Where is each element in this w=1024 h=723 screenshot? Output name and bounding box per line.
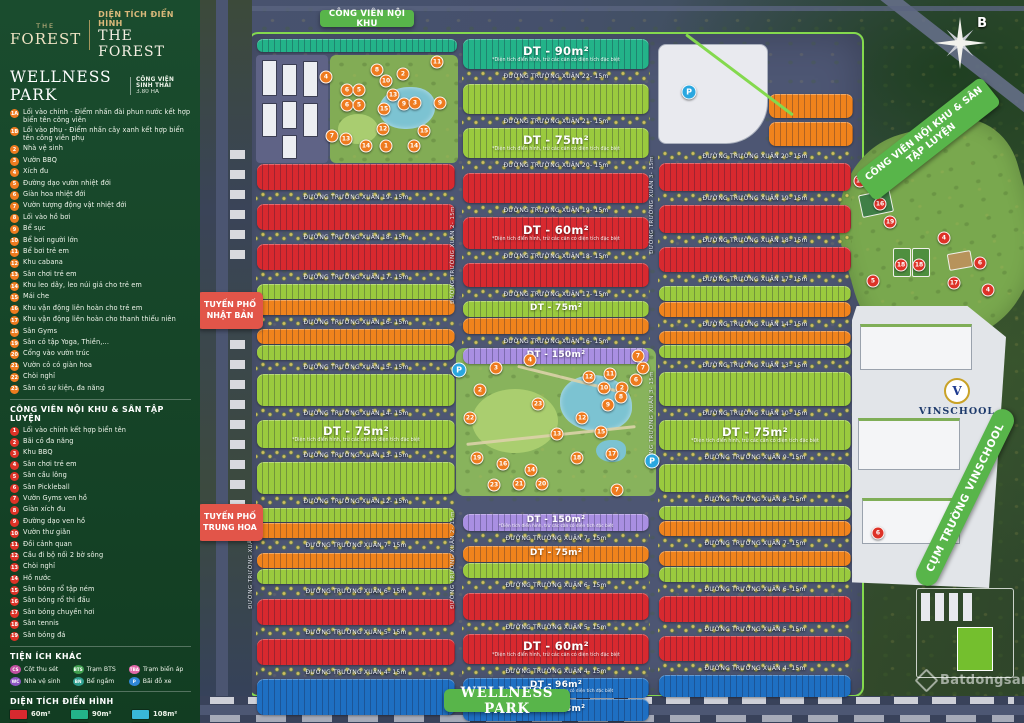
legend-item: 8Giàn xích đu [10, 506, 191, 515]
legend-item: 6Sân Pickleball [10, 484, 191, 493]
lot-row: DT - 75m²*Diện tích điển hình, trừ các c… [257, 420, 455, 448]
legend-item: 10Vườn thư giãn [10, 529, 191, 538]
area-label: DT - 75m² [463, 301, 649, 317]
street: ĐƯỜNG TRƯỜNG XUÂN 5- 15m [462, 621, 650, 633]
legend-badge: 8 [10, 506, 19, 515]
amenity-badge: 14 [360, 140, 373, 153]
lot-row [463, 563, 649, 578]
legend-badge: 12 [10, 259, 19, 268]
legend-label: Bể bơi người lớn [23, 237, 78, 245]
street: ĐƯỜNG TRƯỜNG XUÂN 4- 15m [462, 665, 650, 677]
legend-label: Sân tennis [23, 620, 59, 628]
amenity-badge: 9 [602, 399, 615, 412]
legend-label: Đường dạo ven hồ [23, 518, 85, 526]
legend-item: 21Vườn cỏ có giàn hoa [10, 362, 191, 371]
school-building [860, 324, 972, 370]
amenity-badge: 12 [377, 123, 390, 136]
legend-badge: 4 [10, 461, 19, 470]
legend-item: 14Khu leo dây, leo núi giả cho trẻ em [10, 282, 191, 291]
watermark: Batdongsan [918, 672, 1024, 689]
legend-badge: 22 [10, 373, 19, 382]
lawn [957, 627, 993, 671]
utility-badge-icon: BN [73, 677, 84, 686]
lot-row [257, 345, 455, 360]
street: ĐƯỜNG TRƯỜNG XUÂN 18- 15m [658, 234, 852, 246]
amenity-badge: 19 [471, 452, 484, 465]
legend-item: 12Cầu đi bộ nối 2 bờ sông [10, 552, 191, 561]
legend-badge: 15 [10, 586, 19, 595]
legend-badge: 14 [10, 282, 19, 291]
amenity-badge: 10 [380, 75, 393, 88]
legend-badge: 1 [10, 427, 19, 436]
legend-badge: 5 [10, 472, 19, 481]
lot-row [463, 263, 649, 287]
legend-badge: 1A [10, 109, 19, 118]
lot-row: DT - 150m² [463, 348, 649, 364]
legend-badge: 18 [10, 328, 19, 337]
amenity-badge: 11 [431, 56, 444, 69]
wellness-park-heading: WELLNESS PARK CÔNG VIÊN SINH THÁI 3.80 H… [10, 68, 191, 104]
legend-badge: 20 [10, 350, 19, 359]
street-vertical: ĐƯỜNG TRƯỜNG XUÂN 2- 15m [450, 206, 456, 304]
banner-japanese-street: TUYẾN PHỐ NHẬT BẢN [197, 292, 263, 329]
legend-label: Đồi cảnh quan [23, 541, 72, 549]
street: ĐƯỜNG TRƯỜNG XUÂN 19- 15m [462, 204, 650, 216]
vinschool-logo: V VINSCHOOL [914, 378, 1000, 417]
lot-column-right: ĐƯỜNG TRƯỜNG XUÂN 20- 15mĐƯỜNG TRƯỜNG XU… [658, 150, 852, 698]
utility-label: Trạm biến áp [143, 666, 183, 673]
amenity-badge: 15 [595, 426, 608, 439]
utilities-legend-grid: CSCột thu sétBTSTrạm BTSTBATrạm biến ápW… [10, 665, 191, 686]
legend-badge: 16 [10, 305, 19, 314]
utility-label: Cột thu sét [24, 666, 58, 673]
legend-label: Hồ nước [23, 575, 51, 583]
legend-item: 9Bể sục [10, 225, 191, 234]
street: ĐƯỜNG TRƯỜNG XUÂN 7- 15m [256, 539, 456, 552]
legend-badge: 5 [10, 180, 19, 189]
area-size-label: 60m² [31, 710, 51, 718]
section-title: CÔNG VIÊN NỘI KHU & SÂN TẬP LUYỆN [10, 405, 191, 423]
street: ĐƯỜNG TRƯỜNG XUÂN 17- 15m [462, 288, 650, 300]
utility-label: Bể ngầm [87, 678, 115, 685]
utility-label: Bãi đỗ xe [143, 678, 172, 685]
banner-wellness-park: WELLNESS PARK [444, 689, 570, 712]
watermark-diamond-icon [914, 668, 938, 692]
legend-item: 11Bể bơi trẻ em [10, 248, 191, 257]
street: ĐƯỜNG TRƯỜNG XUÂN 10- 15m [658, 407, 852, 419]
legend-label: Giàn hoa nhiệt đới [23, 191, 85, 199]
banner-chinese-street: TUYẾN PHỐ TRUNG HOA [197, 504, 263, 541]
amenity-badge: 5 [353, 99, 366, 112]
amenity-badge: 13 [340, 133, 353, 146]
amenity-badge: 5 [867, 275, 880, 288]
legend-item: 19Sân bóng đá [10, 632, 191, 641]
legend-item: 16Sân bóng rổ thi đấu [10, 597, 191, 606]
legend-badge: 1B [10, 127, 19, 136]
amenity-badge: 18 [913, 259, 926, 272]
lot-row [659, 675, 851, 697]
area-label: DT - 75m² [463, 546, 649, 562]
amenity-badge: 17 [948, 277, 961, 290]
amenity-badge: 23 [488, 479, 501, 492]
lot-row: DT - 60m²*Diện tích điển hình, trừ các c… [463, 217, 649, 249]
street: ĐƯỜNG TRƯỜNG XUÂN 13- 15m [256, 449, 456, 461]
amenity-badge: 4 [938, 232, 951, 245]
lot-row [659, 567, 851, 582]
street: ĐƯỜNG TRƯỜNG XUÂN 4- 15m [256, 666, 456, 678]
lot-row [257, 284, 455, 299]
amenity-badge: 7 [637, 362, 650, 375]
legend-item: 6Giàn hoa nhiệt đới [10, 191, 191, 200]
legend-item: 12Khu cabana [10, 259, 191, 268]
amenity-badge: 5 [353, 84, 366, 97]
street: ĐƯỜNG TRƯỜNG XUÂN 20- 15m [462, 159, 650, 172]
legend-badge: 8 [10, 214, 19, 223]
legend-item: 14Hồ nước [10, 575, 191, 584]
lot-row [257, 569, 455, 584]
left-context-strip [200, 0, 252, 696]
legend-label: Giàn xích đu [23, 506, 65, 514]
legend-badge: 17 [10, 609, 19, 618]
legend-item: 22Chòi nghỉ [10, 373, 191, 382]
amenity-badge: 15 [378, 103, 391, 116]
legend-badge: 21 [10, 362, 19, 371]
planned-compound [916, 588, 1014, 678]
legend-badge: 9 [10, 225, 19, 234]
lot-row: DT - 150m²*Diện tích điển hình, trừ các … [463, 514, 649, 531]
legend-label: Khu vận động liên hoàn cho thanh thiếu n… [23, 316, 176, 324]
park-area-value: 3.80 HA [136, 89, 191, 95]
lot-row [659, 521, 851, 536]
area-label: DT - 150m² [463, 348, 649, 364]
amenity-badge: 23 [532, 398, 545, 411]
legend-item: 17Sân bóng chuyền hơi [10, 609, 191, 618]
utility-badge-icon: BTS [73, 665, 84, 674]
lot-row: DT - 75m²*Diện tích điển hình, trừ các c… [659, 420, 851, 450]
compass-north-label: B [977, 16, 987, 31]
area-color-legend-grid: 60m²90m²108m²75m²96m²150m² [10, 710, 191, 723]
legend-label: Khu vận động liên hoàn cho trẻ em [23, 305, 142, 313]
legend-badge: 19 [10, 339, 19, 348]
legend-label: Cổng vào vườn trúc [23, 350, 89, 358]
amenity-badge: 6 [630, 374, 643, 387]
utility-badge-icon: TBA [129, 665, 140, 674]
lot-row [659, 372, 851, 406]
legend-badge: 19 [10, 632, 19, 641]
lot-row [257, 329, 455, 344]
area-legend-item: 60m² [10, 710, 69, 719]
legend-label: Cầu đi bộ nối 2 bờ sông [23, 552, 103, 560]
banner-internal-park: CÔNG VIÊN NỘI KHU [320, 10, 414, 27]
parking-badge: P [645, 454, 660, 469]
lot-row [659, 464, 851, 492]
utility-badge-icon: P [129, 677, 140, 686]
area-legend-item: 90m² [71, 710, 130, 719]
amenity-badge: 4 [982, 284, 995, 297]
legend-item: 10Bể bơi người lớn [10, 237, 191, 246]
amenity-badge: 14 [408, 140, 421, 153]
lot-row [257, 523, 455, 538]
amenity-badge: 12 [583, 371, 596, 384]
parking-badge: P [452, 363, 467, 378]
legend-item: 18Sân tennis [10, 620, 191, 629]
wellness-park-legend-list: 1ALối vào chính - Điểm nhấn đài phun nướ… [10, 109, 191, 394]
legend-item: 13Chòi nghỉ [10, 563, 191, 572]
entry-lot-rows [768, 44, 854, 150]
divider [89, 20, 90, 50]
amenity-badge: 7 [326, 130, 339, 143]
amenity-badge: 16 [497, 458, 510, 471]
amenity-badge: 17 [606, 448, 619, 461]
legend-item: 8Lối vào hồ bơi [10, 214, 191, 223]
legend-label: Sân cỏ sự kiện, đa năng [23, 385, 104, 393]
lot-row [257, 639, 455, 665]
legend-label: Lối vào hồ bơi [23, 214, 70, 222]
utility-label: Nhà vệ sinh [24, 678, 61, 685]
amenity-badge: 9 [434, 97, 447, 110]
street: ĐƯỜNG TRƯỜNG XUÂN 5- 15m [658, 623, 852, 635]
area-label: DT - 75m²*Diện tích điển hình, trừ các c… [463, 128, 649, 158]
park-type-label: CÔNG VIÊN SINH THÁI [136, 77, 191, 89]
legend-badge: 3 [10, 449, 19, 458]
legend-label: Sân bóng rổ thi đấu [23, 597, 90, 605]
lot-row [257, 462, 455, 494]
legend-label: Khu leo dây, leo núi giả cho trẻ em [23, 282, 142, 290]
street: ĐƯỜNG TRƯỜNG XUÂN 19- 15m [658, 192, 852, 204]
legend-label: Bể sục [23, 225, 46, 233]
legend-item: 5Sân cầu lông [10, 472, 191, 481]
street: ĐƯỜNG TRƯỜNG XUÂN 13- 15m [658, 359, 852, 371]
utility-item: BNBể ngầm [73, 677, 127, 686]
area-size-label: 90m² [92, 710, 112, 718]
legend-badge: 3 [10, 157, 19, 166]
utility-item: TBATrạm biến áp [129, 665, 191, 674]
legend-item: 9Đường dạo ven hồ [10, 518, 191, 527]
street: ĐƯỜNG TRƯỜNG XUÂN 6- 15m [256, 585, 456, 598]
legend-label: Sân bóng đá [23, 632, 66, 640]
area-label: DT - 75m²*Diện tích điển hình, trừ các c… [659, 420, 851, 450]
legend-badge: 2 [10, 438, 19, 447]
legend-label: Khu cabana [23, 259, 63, 267]
legend-label: Vườn BBQ [23, 157, 57, 165]
legend-badge: 16 [10, 597, 19, 606]
lot-row [659, 163, 851, 191]
legend-label: Sân chơi trẻ em [23, 461, 77, 469]
lot-row [463, 173, 649, 203]
legend-item: 1Lối vào chính kết hợp biển tên [10, 427, 191, 436]
legend-badge: 9 [10, 518, 19, 527]
legend-label: Vườn tượng động vật nhiệt đới [23, 202, 126, 210]
legend-item: 23Sân cỏ sự kiện, đa năng [10, 385, 191, 394]
legend-badge: 4 [10, 168, 19, 177]
street: ĐƯỜNG TRƯỜNG XUÂN 22- 15m [462, 70, 650, 83]
amenity-badge: 20 [536, 478, 549, 491]
area-label: DT - 75m²*Diện tích điển hình, trừ các c… [257, 420, 455, 448]
legend-item: 2Nhà vệ sinh [10, 145, 191, 154]
legend-badge: 10 [10, 237, 19, 246]
amenity-badge: 3 [490, 362, 503, 375]
masterplan-poster: V VINSCHOOL [0, 0, 1024, 723]
amenity-badge: 6 [974, 257, 987, 270]
legend-item: 7Vườn tượng động vật nhiệt đới [10, 202, 191, 211]
street: ĐƯỜNG TRƯỜNG XUÂN 9- 15m [658, 451, 852, 463]
lot-row: DT - 75m² [463, 546, 649, 562]
street-buildings [230, 340, 245, 508]
legend-label: Bể bơi trẻ em [23, 248, 69, 256]
lot-row [659, 247, 851, 272]
street: ĐƯỜNG TRƯỜNG XUÂN 17- 15m [658, 273, 852, 285]
lot-row [659, 345, 851, 358]
street: ĐƯỜNG TRƯỜNG XUÂN 5- 15m [256, 626, 456, 638]
lot-row [659, 551, 851, 566]
street: ĐƯỜNG TRƯỜNG XUÂN 6- 15m [658, 583, 852, 595]
street: ĐƯỜNG TRƯỜNG XUÂN 16- 15m [256, 316, 456, 328]
poster-title: DIỆN TÍCH ĐIỂN HÌNH THE FOREST [98, 10, 191, 60]
amenity-badge: 7 [611, 484, 624, 497]
utility-item: WCNhà vệ sinh [10, 677, 71, 686]
amenity-badge: 3 [409, 97, 422, 110]
amenity-badge: 18 [895, 259, 908, 272]
amenity-badge: 13 [551, 428, 564, 441]
area-label: DT - 60m²*Diện tích điển hình, trừ các c… [463, 634, 649, 664]
legend-item: 4Sân chơi trẻ em [10, 461, 191, 470]
legend-label: Sân cỏ tập Yoga, Thiền,... [23, 339, 109, 347]
lot-row [463, 593, 649, 620]
legend-item: 13Sân chơi trẻ em [10, 271, 191, 280]
legend-label: Vườn thư giãn [23, 529, 71, 537]
street: ĐƯỜNG TRƯỜNG XUÂN 21- 15m [462, 115, 650, 127]
amenity-badge: 12 [576, 412, 589, 425]
lot-row [257, 679, 455, 715]
section-title: DIỆN TÍCH ĐIỂN HÌNH [10, 697, 191, 706]
legend-label: Sân bóng chuyền hơi [23, 609, 94, 617]
amenity-badge: 21 [513, 478, 526, 491]
legend-label: Bãi cỏ đa năng [23, 438, 74, 446]
legend-item: 15Mái che [10, 293, 191, 302]
utility-label: Trạm BTS [87, 666, 116, 673]
lot-row: DT - 90m²*Diện tích điển hình, trừ các c… [463, 39, 649, 69]
lot-row: DT - 75m²*Diện tích điển hình, trừ các c… [463, 128, 649, 158]
the-forest-logo: THE FOREST [10, 22, 81, 48]
legend-badge: 6 [10, 191, 19, 200]
utility-badge-icon: CS [10, 665, 21, 674]
lot-row [257, 599, 455, 625]
legend-item: 7Vườn Gyms ven hồ [10, 495, 191, 504]
lot-row [257, 204, 455, 230]
amenity-badge: 8 [615, 391, 628, 404]
lot-row [659, 205, 851, 233]
legend-badge: 10 [10, 529, 19, 538]
utility-item: CSCột thu sét [10, 665, 71, 674]
legend-badge: 11 [10, 541, 19, 550]
lot-row [257, 39, 457, 52]
legend-label: Sân Pickleball [23, 484, 70, 492]
legend-badge: 18 [10, 620, 19, 629]
legend-item: 1BLối vào phụ - Điểm nhấn cây xanh kết h… [10, 127, 191, 143]
legend-item: 5Đường dạo vườn nhiệt đới [10, 180, 191, 189]
internal-park-legend-list: 1Lối vào chính kết hợp biển tên2Bãi cỏ đ… [10, 427, 191, 641]
lot-row [257, 553, 455, 568]
rooftops [921, 593, 975, 621]
area-label: DT - 150m²*Diện tích điển hình, trừ các … [463, 514, 649, 531]
street: ĐƯỜNG TRƯỜNG XUÂN 6- 15m [462, 579, 650, 592]
legend-badge: 15 [10, 293, 19, 302]
legend-label: Vườn cỏ có giàn hoa [23, 362, 92, 370]
lot-row [659, 286, 851, 301]
clubhouse-building [658, 44, 768, 144]
amenity-badge: 1 [380, 140, 393, 153]
legend-badge: 13 [10, 271, 19, 280]
lot-row [257, 244, 455, 270]
lot-row [257, 300, 455, 315]
amenity-badge: 10 [598, 382, 611, 395]
legend-label: Đường dạo vườn nhiệt đới [23, 180, 111, 188]
area-size-label: 108m² [153, 710, 177, 718]
legend-item: 1ALối vào chính - Điểm nhấn đài phun nướ… [10, 109, 191, 125]
legend-label: Khu BBQ [23, 449, 53, 457]
legend-badge: 6 [10, 484, 19, 493]
legend-badge: 7 [10, 202, 19, 211]
legend-label: Chòi nghỉ [23, 563, 55, 571]
legend-item: 3Vườn BBQ [10, 157, 191, 166]
legend-label: Lối vào chính - Điểm nhấn đài phun nước … [23, 109, 191, 125]
street: ĐƯỜNG TRƯỜNG XUÂN 12- 15m [256, 495, 456, 507]
legend-label: Xích đu [23, 168, 48, 176]
street: ĐƯỜNG TRƯỜNG XUÂN 14- 15m [658, 318, 852, 330]
utility-item: PBãi đỗ xe [129, 677, 191, 686]
lot-row [463, 318, 649, 334]
legend-label: Sân chơi trẻ em [23, 271, 77, 279]
lot-row [659, 506, 851, 520]
area-label: DT - 90m²*Diện tích điển hình, trừ các c… [463, 39, 649, 69]
legend-item: 4Xích đu [10, 168, 191, 177]
legend-label: Lối vào phụ - Điểm nhấn cây xanh kết hợp… [23, 127, 191, 143]
lot-row [463, 84, 649, 114]
legend-item: 20Cổng vào vườn trúc [10, 350, 191, 359]
amenity-badge: 2 [397, 68, 410, 81]
area-legend-item: 108m² [132, 710, 191, 719]
street: ĐƯỜNG TRƯỜNG XUÂN 19- 15m [256, 191, 456, 203]
area-color-swatch [10, 710, 27, 719]
legend-item: 11Đồi cảnh quan [10, 541, 191, 550]
amenity-badge: 11 [604, 368, 617, 381]
legend-badge: 13 [10, 563, 19, 572]
lot-row [659, 302, 851, 317]
legend-badge: 7 [10, 495, 19, 504]
street: ĐƯỜNG TRƯỜNG XUÂN 20- 15m [658, 150, 852, 162]
amenity-badge: 22 [464, 412, 477, 425]
lot-row: DT - 75m² [463, 301, 649, 317]
divider [10, 691, 191, 692]
amenity-badge: 2 [474, 384, 487, 397]
legend-label: Lối vào chính kết hợp biển tên [23, 427, 126, 435]
amenity-badge: 15 [418, 125, 431, 138]
street: ĐƯỜNG TRƯỜNG XUÂN 14- 15m [256, 407, 456, 419]
lot-row [257, 508, 455, 522]
legend-label: Nhà vệ sinh [23, 145, 63, 153]
legend-label: Chòi nghỉ [23, 373, 55, 381]
legend-badge: 12 [10, 552, 19, 561]
amenity-badge: 4 [524, 354, 537, 367]
legend-label: Vườn Gyms ven hồ [23, 495, 87, 503]
street-vertical: ĐƯỜNG TRƯỜNG XUÂN 2- 15m [450, 511, 456, 609]
area-label: DT - 60m²*Diện tích điển hình, trừ các c… [463, 217, 649, 249]
legend-badge: 23 [10, 385, 19, 394]
area-color-swatch [71, 710, 88, 719]
street: ĐƯỜNG TRƯỜNG XUÂN 17- 15m [256, 271, 456, 283]
utility-item: BTSTrạm BTS [73, 665, 127, 674]
compass-rose: B [933, 16, 993, 80]
